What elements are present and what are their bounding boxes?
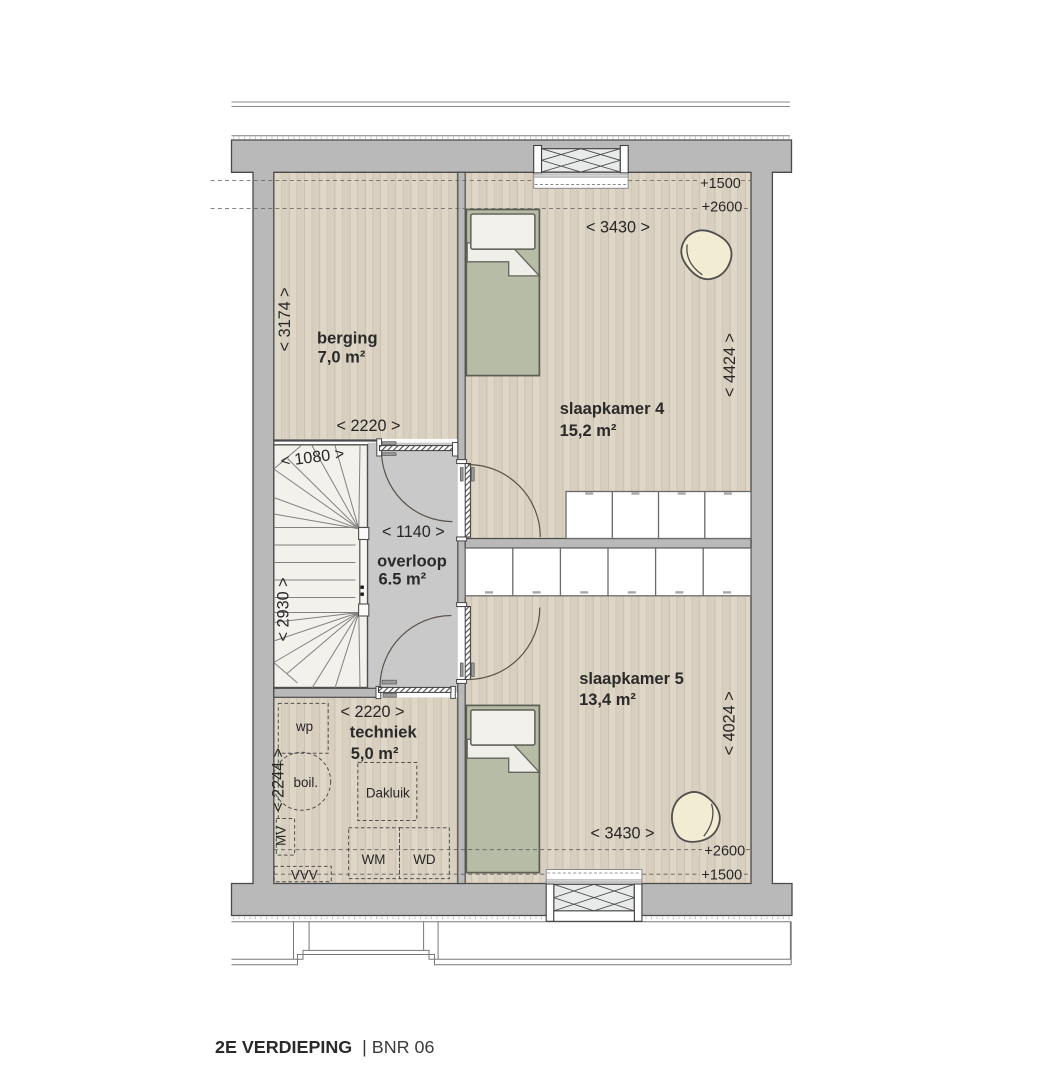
- svg-text:+2600: +2600: [702, 200, 743, 216]
- svg-text:15,2 m²: 15,2 m²: [560, 422, 617, 440]
- svg-text:< 1140 >: < 1140 >: [382, 523, 445, 541]
- svg-text:7,0 m²: 7,0 m²: [318, 349, 366, 367]
- svg-text:< 2220 >: < 2220 >: [337, 417, 401, 435]
- svg-text:wp: wp: [295, 719, 313, 734]
- svg-text:VVV: VVV: [291, 868, 318, 883]
- svg-text:6.5 m²: 6.5 m²: [378, 570, 426, 588]
- svg-text:boil.: boil.: [294, 775, 319, 790]
- svg-text:5,0 m²: 5,0 m²: [351, 745, 399, 763]
- svg-text:WM: WM: [362, 852, 386, 867]
- svg-text:overloop: overloop: [377, 553, 447, 571]
- svg-text:2E VERDIEPING | BNR 06: 2E VERDIEPING | BNR 06: [215, 1037, 434, 1057]
- svg-text:< 3430 >: < 3430 >: [591, 825, 655, 843]
- svg-text:MV: MV: [273, 826, 288, 846]
- svg-text:berging: berging: [317, 330, 378, 348]
- svg-text:Dakluik: Dakluik: [366, 786, 410, 801]
- svg-text:+1500: +1500: [701, 867, 742, 883]
- svg-text:13,4 m²: 13,4 m²: [579, 691, 636, 709]
- svg-text:< 3174 >: < 3174 >: [276, 287, 294, 351]
- svg-text:WD: WD: [413, 852, 436, 867]
- svg-text:< 3430 >: < 3430 >: [586, 219, 650, 237]
- svg-text:< 4024 >: < 4024 >: [721, 691, 739, 755]
- svg-text:< 4424 >: < 4424 >: [721, 333, 739, 397]
- svg-text:+1500: +1500: [700, 176, 741, 192]
- svg-text:techniek: techniek: [350, 724, 418, 742]
- svg-text:+2600: +2600: [704, 843, 745, 859]
- svg-text:slaapkamer 5: slaapkamer 5: [579, 670, 684, 688]
- svg-text:< 2930 >: < 2930 >: [275, 577, 293, 641]
- svg-text:< 2244 >: < 2244 >: [270, 748, 288, 812]
- svg-text:< 2220 >: < 2220 >: [341, 703, 405, 721]
- svg-text:slaapkamer 4: slaapkamer 4: [560, 400, 665, 418]
